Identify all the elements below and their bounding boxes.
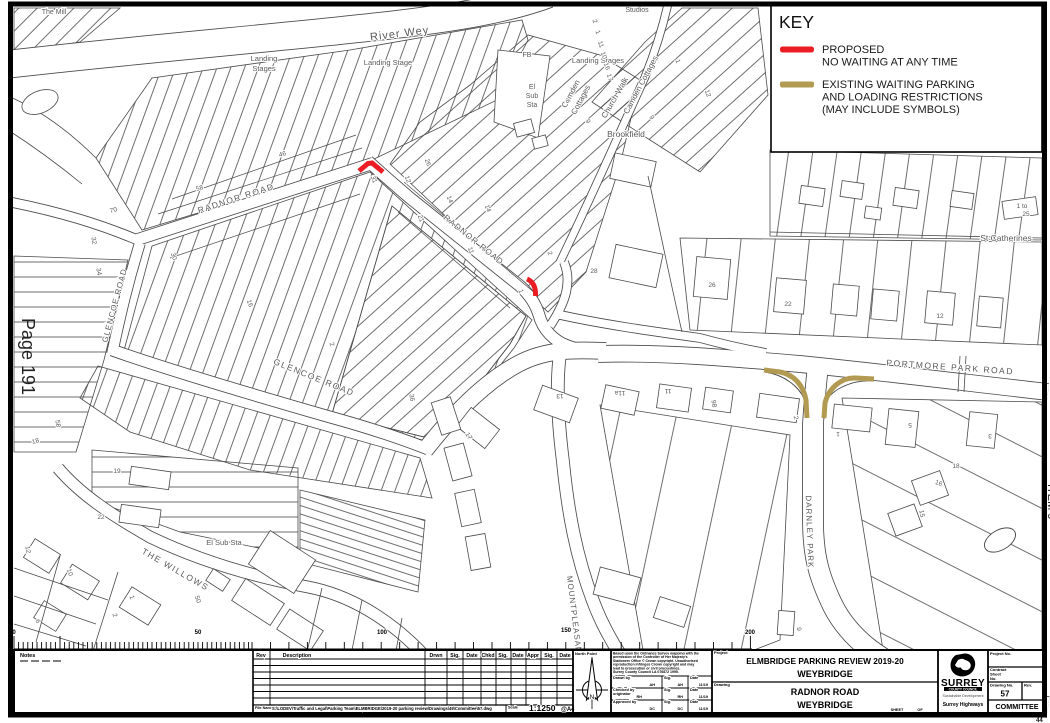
svg-text:Date: Date bbox=[512, 653, 523, 659]
svg-text:AND LOADING RESTRICTIONS: AND LOADING RESTRICTIONS bbox=[822, 92, 983, 104]
svg-text:Chkd: Chkd bbox=[482, 653, 495, 659]
svg-text:EXISTING WAITING PARKING: EXISTING WAITING PARKING bbox=[822, 79, 975, 91]
svg-text:NO WAITING AT ANY TIME: NO WAITING AT ANY TIME bbox=[822, 57, 958, 69]
svg-text:28: 28 bbox=[590, 268, 598, 275]
svg-text:Sig.: Sig. bbox=[664, 700, 671, 704]
svg-text:Page 191: Page 191 bbox=[18, 318, 38, 395]
svg-text:Approved by: Approved by bbox=[613, 700, 637, 704]
svg-text:12: 12 bbox=[936, 313, 944, 320]
svg-text:The Mill: The Mill bbox=[42, 9, 67, 16]
svg-text:18: 18 bbox=[952, 463, 960, 470]
svg-text:Landing Stages: Landing Stages bbox=[572, 56, 624, 65]
svg-text:22: 22 bbox=[784, 301, 792, 308]
svg-text:Drawing No.: Drawing No. bbox=[990, 683, 1013, 688]
svg-text:(MAY INCLUDE SYMBOLS): (MAY INCLUDE SYMBOLS) bbox=[822, 104, 960, 116]
svg-text:Surrey County Council LA 07687: Surrey County Council LA 076872 1995. bbox=[613, 670, 679, 674]
svg-text:11a: 11a bbox=[614, 389, 625, 396]
svg-text:Rev.: Rev. bbox=[1024, 683, 1032, 688]
svg-text:50: 50 bbox=[195, 630, 202, 636]
svg-text:100: 100 bbox=[377, 630, 388, 636]
svg-text:Date: Date bbox=[690, 676, 698, 680]
svg-text:200: 200 bbox=[745, 630, 756, 636]
svg-text:Surrey Highways: Surrey Highways bbox=[943, 702, 984, 708]
svg-text:RADNOR ROAD: RADNOR ROAD bbox=[791, 687, 860, 697]
svg-text:North Point: North Point bbox=[575, 651, 597, 656]
svg-text:Studios: Studios bbox=[625, 7, 649, 14]
svg-text:Sig.: Sig. bbox=[544, 653, 554, 659]
svg-text:El: El bbox=[529, 84, 536, 91]
svg-text:Date: Date bbox=[690, 700, 698, 704]
svg-text:Description: Description bbox=[283, 653, 312, 659]
svg-text:COUNTY COUNCIL: COUNTY COUNCIL bbox=[949, 687, 978, 691]
svg-text:RH: RH bbox=[637, 695, 643, 699]
svg-text:Sig.: Sig. bbox=[664, 676, 671, 680]
svg-text:Project No.: Project No. bbox=[990, 651, 1011, 656]
svg-text:Drwn: Drwn bbox=[430, 653, 443, 659]
svg-text:RH: RH bbox=[678, 695, 684, 699]
svg-text:DC: DC bbox=[650, 707, 656, 711]
svg-text:Sig.: Sig. bbox=[664, 688, 671, 692]
svg-text:11/19: 11/19 bbox=[699, 683, 708, 687]
svg-text:5: 5 bbox=[908, 421, 912, 428]
svg-text:26: 26 bbox=[708, 282, 716, 289]
svg-text:11: 11 bbox=[664, 387, 671, 394]
svg-text:WEYBRIDGE: WEYBRIDGE bbox=[797, 669, 853, 679]
svg-text:150: 150 bbox=[561, 628, 572, 634]
svg-text:1:1250: 1:1250 bbox=[529, 703, 556, 713]
svg-text:44: 44 bbox=[1036, 718, 1043, 723]
svg-text:11/19: 11/19 bbox=[699, 695, 708, 699]
svg-text:DC: DC bbox=[678, 707, 684, 711]
svg-text:No.: No. bbox=[990, 676, 996, 681]
svg-text:File Name: File Name bbox=[255, 706, 273, 710]
svg-text:Stages: Stages bbox=[252, 64, 276, 73]
svg-text:13: 13 bbox=[556, 392, 564, 399]
svg-text:Brookfield: Brookfield bbox=[607, 129, 645, 139]
svg-text:Sig.: Sig. bbox=[498, 653, 508, 659]
svg-text:AH: AH bbox=[678, 683, 684, 687]
svg-text:S:\LODEV\Traffic and Legal\Par: S:\LODEV\Traffic and Legal\Parking Team\… bbox=[272, 706, 492, 711]
svg-text:Date: Date bbox=[466, 653, 477, 659]
svg-text:Drawn by: Drawn by bbox=[613, 676, 631, 680]
svg-text:Rev: Rev bbox=[256, 653, 266, 659]
svg-text:3: 3 bbox=[988, 432, 992, 439]
svg-text:El Sub Sta: El Sub Sta bbox=[206, 538, 242, 547]
svg-text:Date: Date bbox=[559, 653, 570, 659]
svg-text:57: 57 bbox=[1001, 690, 1010, 699]
svg-text:25: 25 bbox=[1022, 211, 1030, 218]
svg-text:Project: Project bbox=[714, 650, 728, 655]
svg-text:KEY: KEY bbox=[779, 12, 814, 32]
svg-text:COMMITTEE: COMMITTEE bbox=[995, 702, 1038, 711]
svg-text:SHEET: SHEET bbox=[891, 708, 904, 712]
svg-text:Scale: Scale bbox=[508, 706, 518, 710]
svg-text:AH: AH bbox=[650, 683, 656, 687]
svg-text:1 to: 1 to bbox=[1017, 203, 1028, 210]
svg-text:ITEM 9: ITEM 9 bbox=[1045, 484, 1050, 519]
svg-text:Drawing: Drawing bbox=[714, 682, 730, 687]
svg-text:Notes: Notes bbox=[20, 653, 35, 659]
svg-text:originator: originator bbox=[613, 692, 631, 696]
svg-text:Sustainable Development: Sustainable Development bbox=[943, 694, 984, 698]
svg-text:22: 22 bbox=[97, 514, 105, 521]
svg-text:Landing: Landing bbox=[251, 54, 278, 63]
svg-text:FB: FB bbox=[523, 52, 532, 59]
svg-text:Date: Date bbox=[690, 688, 698, 692]
svg-text:11/19: 11/19 bbox=[699, 707, 708, 711]
svg-text:N: N bbox=[590, 694, 595, 701]
svg-text:Landing Stage: Landing Stage bbox=[364, 58, 412, 67]
svg-text:Sig.: Sig. bbox=[450, 653, 460, 659]
svg-text:19: 19 bbox=[113, 468, 121, 475]
svg-text:WEYBRIDGE: WEYBRIDGE bbox=[797, 700, 853, 710]
svg-text:St Catherines: St Catherines bbox=[980, 233, 1032, 243]
svg-text:9: 9 bbox=[795, 627, 802, 631]
svg-text:OF: OF bbox=[917, 708, 923, 712]
svg-text:1: 1 bbox=[836, 430, 840, 437]
svg-text:ELMBRIDGE PARKING REVIEW 2019-: ELMBRIDGE PARKING REVIEW 2019-20 bbox=[746, 656, 904, 666]
svg-text:Sub: Sub bbox=[526, 93, 539, 100]
svg-text:PROPOSED: PROPOSED bbox=[822, 44, 884, 56]
svg-text:Sta: Sta bbox=[527, 102, 538, 109]
svg-text:Appr: Appr bbox=[527, 653, 539, 659]
